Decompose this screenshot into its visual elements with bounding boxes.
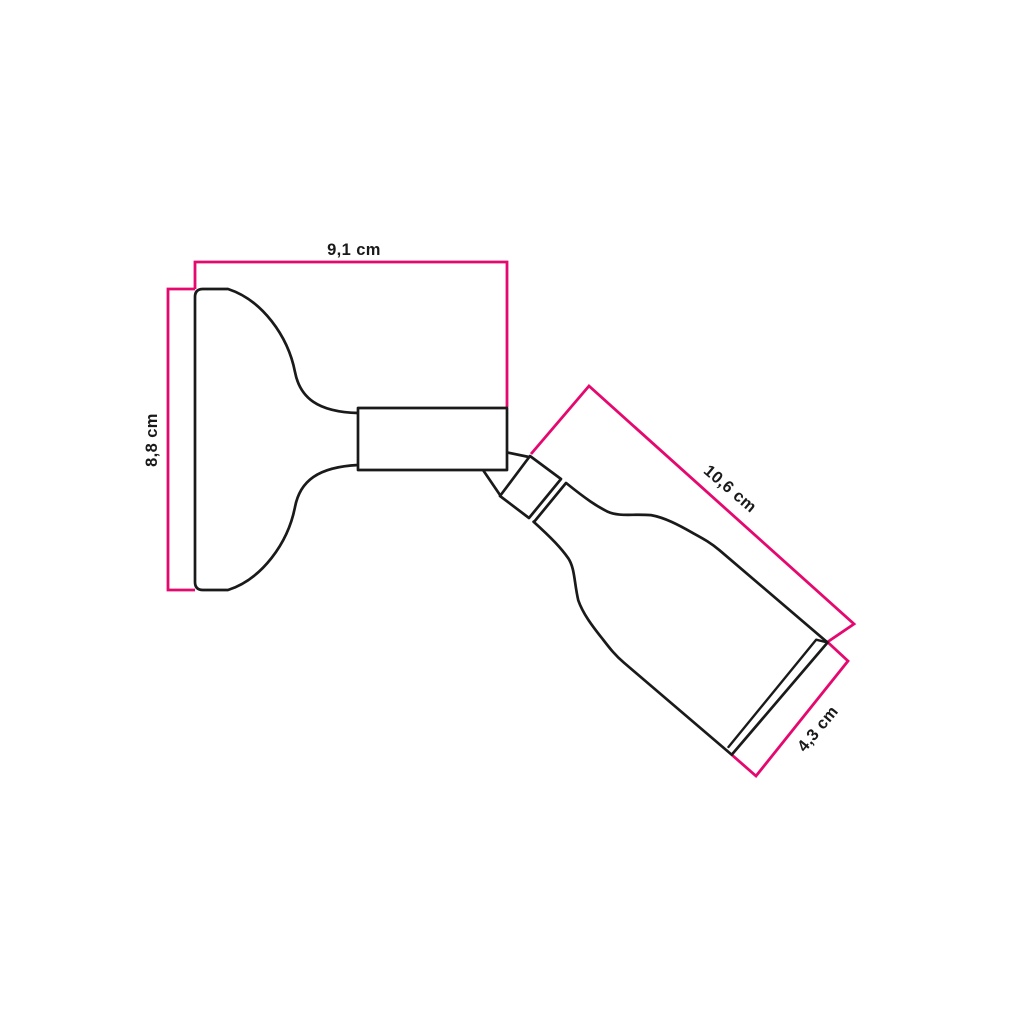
joint-hinge-upper-line <box>505 452 529 457</box>
dimension-label-holder-diameter: 4,3 cm <box>794 703 842 756</box>
wall-base <box>195 289 507 590</box>
dimension-label-base-height: 8,8 cm <box>143 413 161 467</box>
diagram-canvas: 9,1 cm 8,8 cm 10,6 cm 4,3 cm <box>0 0 1024 1024</box>
dimension-line-base-width <box>195 262 507 407</box>
joint-hinge-lower-line <box>483 470 500 495</box>
product-dimension-diagram: 9,1 cm 8,8 cm 10,6 cm 4,3 cm <box>0 0 1024 1024</box>
dimension-label-base-width: 9,1 cm <box>327 241 381 259</box>
wall-base-neck <box>358 408 507 470</box>
wall-base-outline <box>195 289 358 590</box>
dimension-label-holder-length: 10,6 cm <box>700 462 760 517</box>
dimension-line-base-height <box>168 289 195 590</box>
